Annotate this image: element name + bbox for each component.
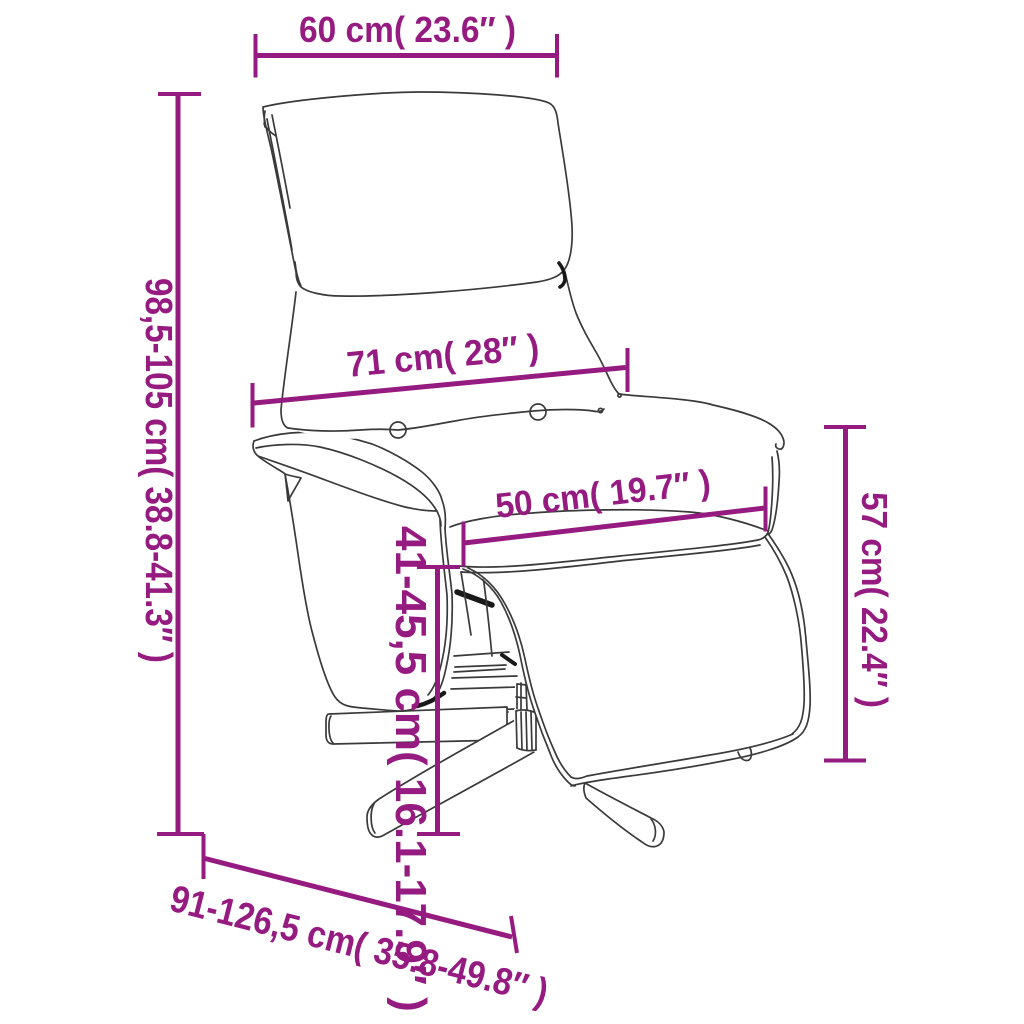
svg-text:60 cm( 23.6″ ): 60 cm( 23.6″ ) <box>299 9 516 50</box>
svg-text:98,5-105 cm( 38.8-41.3″ ): 98,5-105 cm( 38.8-41.3″ ) <box>137 278 179 663</box>
svg-text:57 cm( 22.4″ ): 57 cm( 22.4″ ) <box>854 492 895 708</box>
